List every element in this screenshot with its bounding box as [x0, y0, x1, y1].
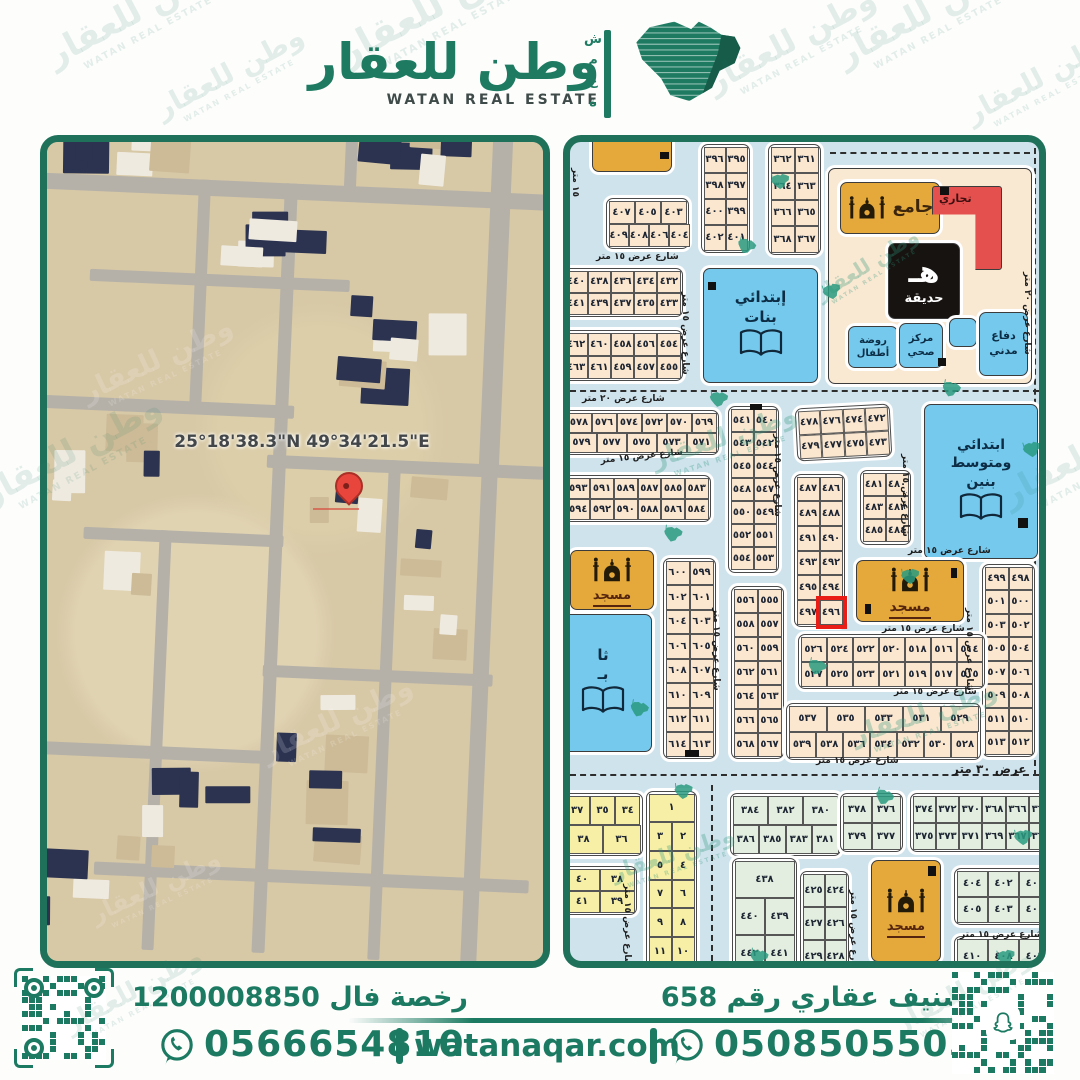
plot-cell: ٣٦٧ [795, 226, 819, 253]
plot-block: ٤٠٤٤٠٢٤٠٠٤٠٥٤٠٣٤٠١ [954, 868, 1046, 925]
plot-cell: ٦٠٩ [690, 683, 714, 708]
plot-row: ٥٧٩٥٧٧٥٧٥٥٧٣٥٧١ [567, 433, 717, 453]
plot-block: ١٣٢٥٤٧٦٩٨١١١٠ [646, 791, 697, 968]
building [116, 835, 141, 860]
plot-cell: ٣٩٥ [726, 147, 748, 173]
plot-row: ٥٤٥٥٤٤ [731, 455, 777, 478]
plot-block: ٥٧٨٥٧٦٥٧٤٥٧٢٥٧٠٥٦٩٥٧٩٥٧٧٥٧٥٥٧٣٥٧١ [564, 410, 719, 455]
plot-cell: ٥٧٦ [592, 413, 617, 433]
plot-cell: ٣٨١ [812, 825, 839, 854]
qr-module [1010, 1067, 1016, 1073]
road [40, 394, 294, 419]
facility-difa: دفاعمدني [979, 312, 1028, 376]
facility-label: ومتوسط [951, 455, 1012, 471]
plot-cell: ٤٧٩ [799, 434, 823, 459]
qr-module [71, 990, 77, 996]
plot-cell: ٥٣٩ [789, 732, 816, 758]
plot-cell: ٥٧٤ [617, 413, 642, 433]
brand-map-icon [661, 524, 685, 549]
plot-cell: ٤٩٧ [797, 600, 820, 625]
plot-cell: ٥٣٨ [816, 732, 843, 758]
plot-cell: ٥٨٧ [638, 478, 662, 499]
building [310, 497, 329, 523]
plot-cell: ٦٠٤ [666, 610, 690, 635]
building [324, 735, 368, 774]
plot-row: ٥٤ [649, 851, 695, 880]
plot-cell: ٥٠٧ [985, 661, 1009, 685]
plot-cell: ٥٠٩ [985, 684, 1009, 708]
plot-cell: ٥٤٣ [731, 432, 754, 455]
road [344, 135, 359, 192]
plot-cell: ٦١٠ [666, 683, 690, 708]
plot-block: ٣٨٤٣٨٢٣٨٠٣٨٦٣٨٥٣٨٣٣٨١ [730, 793, 841, 856]
plot-cell: ٥٢٢ [853, 637, 879, 662]
plot-cell: ٧ [649, 880, 672, 909]
qr-module [996, 972, 1002, 978]
qr-module [981, 1038, 987, 1044]
plot-cell: ٥٦٣ [758, 685, 782, 709]
plot-cell: ٤٧٨ [797, 410, 821, 435]
plot-cell: ٤٦٣ [565, 356, 588, 379]
road [263, 665, 493, 687]
plot-cell: ٦٠١ [690, 585, 714, 610]
qr-module [99, 1018, 105, 1024]
plot-cell: ٤١٠ [957, 939, 988, 969]
plot-cell: ٦٠٦ [666, 634, 690, 659]
qr-module [71, 1053, 77, 1059]
plot-row: ٦٠٤٦٠٣ [666, 610, 714, 635]
plot-row: ٥١١٥١٠ [985, 708, 1033, 732]
snapchat-ghost-icon [986, 1006, 1020, 1040]
plot-cell: ٦٠٠ [666, 561, 690, 586]
plot-row: ٤٠٧٤٠٥٤٠٣ [609, 201, 687, 224]
qr-module [981, 979, 987, 985]
qr-module [1047, 1030, 1053, 1036]
qr-module [1025, 1045, 1031, 1051]
plot-cell: ٣٨٣ [786, 825, 813, 854]
plot-cell: ٦٠٧ [690, 659, 714, 684]
qr-module [92, 1032, 98, 1038]
plot-cell: ٤٠٤ [669, 224, 689, 247]
facility-school-banat: إبتدائيبنات [703, 268, 818, 383]
facility-jami: جامع [840, 182, 940, 234]
plot-row: ٥٦٤٥٦٣ [734, 685, 782, 709]
qr-code-snapchat [952, 972, 1054, 1074]
building [389, 338, 419, 363]
plot-cell: ٣ [649, 822, 672, 851]
street-label: شارع عرض ١٥ متر [848, 890, 858, 968]
building [116, 152, 153, 177]
plot-cell: ٤٩٦ [820, 600, 843, 625]
plot-row: ٤٧٩٤٧٧٤٧٥٤٧٣ [799, 430, 890, 459]
plot-cell: ٥٩٩ [690, 561, 714, 586]
plot-block: ٤٢٥٤٢٤٤٢٧٤٢٦٤٢٩٤٢٨ [800, 871, 849, 968]
plot-cell: ٥٠٥ [985, 637, 1009, 661]
plot-row: ٥٠١٥٠٠ [985, 590, 1033, 614]
plot-row: ٦١٢٦١١ [666, 708, 714, 733]
qr-module [959, 1008, 965, 1014]
plot-row: ٥٥٢٥٥١ [731, 524, 777, 547]
building [358, 137, 402, 166]
plot-cell: ٣٨٤ [733, 796, 768, 825]
brand-map-icon [1011, 826, 1037, 852]
building [356, 497, 383, 533]
qr-module [1047, 1059, 1053, 1065]
plot-cell: ٤٠١ [1019, 897, 1046, 923]
plot-cell: ٥٦٨ [734, 733, 758, 757]
plot-cell: ٥٧٨ [567, 413, 592, 433]
plot-cell: ٤٩٩ [985, 567, 1009, 591]
brand-logo: وطن للعقار WATAN REAL ESTATE [240, 36, 600, 108]
brand-map-icon [747, 947, 771, 968]
plot-cell: ٦١٢ [666, 708, 690, 733]
classification-text: تصنيف عقاري رقم 658 [640, 982, 1000, 1013]
plot-row: ٤٩٧٤٩٦ [797, 600, 843, 625]
qr-module [1003, 1052, 1009, 1058]
plot-cell: ٦٠٨ [666, 659, 690, 684]
plot-cell: ٤٢٨ [825, 940, 847, 968]
plot-cell: ٤٢٥ [803, 874, 825, 907]
building [276, 732, 297, 762]
street-label: شارع عرض ١٥ متر [816, 756, 899, 766]
brand-map-icon [1019, 438, 1046, 466]
plot-cell: ٤١ [565, 891, 600, 913]
brand-map-icon [768, 170, 794, 196]
qr-module [1039, 1038, 1045, 1044]
plot-cell: ٤٣٦ [611, 271, 634, 293]
plot-row: ٤٩٥٤٩٤ [797, 575, 843, 600]
gps-coordinates-label: 25°18'38.3"N 49°34'21.5"E [117, 432, 487, 452]
facility-hadiqah: هـحديقة [888, 243, 960, 319]
plot-row: ٣٢ [649, 822, 695, 851]
plot-cell: ٥٧٩ [567, 433, 597, 453]
qr-module [36, 1025, 42, 1031]
garden-letter: هـ [908, 255, 939, 290]
dashed-street [830, 152, 1030, 154]
plot-cell: ٣٧١ [959, 823, 982, 850]
plot-cell: ٤٨٥ [863, 519, 886, 542]
qr-module [974, 1067, 980, 1073]
qr-module [1039, 1059, 1045, 1065]
facility-label: بنين [966, 474, 995, 490]
plot-cell: ٥٣٠ [924, 732, 951, 758]
brand-map-icon [938, 378, 964, 404]
street-label: شارع عرض ٢٠ متر [582, 394, 665, 404]
qr-module [952, 994, 958, 1000]
qr-module [43, 990, 49, 996]
qr-module [1039, 1030, 1045, 1036]
plot-cell: ٥٨٥ [661, 478, 685, 499]
plot-cell: ٣٥ [590, 796, 615, 825]
license-text: رخصة فال 1200008850 [120, 982, 480, 1013]
plot-row: ٥٦٠٥٥٩ [734, 637, 782, 661]
building [75, 136, 93, 161]
plot-cell: ٥٨٣ [685, 478, 709, 499]
plot-cell: ٣٦٩ [982, 823, 1005, 850]
building [351, 295, 374, 318]
plot-cell: ٥١٠ [1009, 708, 1033, 732]
plot-cell: ٤٣٤ [634, 271, 657, 293]
plot-cell: ٥٢٥ [827, 662, 853, 687]
plot-row: ٣٨٤٣٨٢٣٨٠ [733, 796, 839, 825]
brand-map-icon [898, 565, 924, 591]
plot-cell: ٣٧ [565, 796, 590, 825]
entrance-mark [951, 568, 957, 578]
plot-cell: ٣٨٢ [768, 796, 803, 825]
entrance-mark [928, 866, 936, 876]
qr-module [1003, 972, 1009, 978]
plot-row: ٤٨٩٤٨٨ [797, 501, 843, 526]
brand-map-icon [672, 781, 696, 806]
facility-school-partial: ثابـ [563, 614, 652, 752]
qr-module [981, 1045, 987, 1051]
qr-module [952, 1023, 958, 1029]
plot-cell: ٥٦٢ [734, 661, 758, 685]
plot-cell: ٥ [649, 851, 672, 880]
plot-cell: ٥٥٢ [731, 524, 754, 547]
plot-cell: ٥٩٢ [590, 499, 614, 520]
plot-cell: ٤٣٥ [634, 293, 657, 315]
side-letter: ع [584, 74, 602, 89]
road [479, 135, 514, 472]
plot-cell: ٤٣٩ [588, 293, 611, 315]
qr-module [967, 1023, 973, 1029]
qr-module [64, 1011, 70, 1017]
plot-cell: ٤٩٢ [820, 551, 843, 576]
plot-cell: ٣٦٨ [982, 796, 1005, 823]
qr-module [1025, 1030, 1031, 1036]
plot-cell: ٤٠٠ [1019, 871, 1046, 897]
building [52, 479, 72, 501]
plot-row: ٥١٣٥١٢ [985, 731, 1033, 755]
plot-cell: ٤٥٨ [611, 333, 634, 356]
qr-module [967, 1052, 973, 1058]
plot-cell: ٤٤١ [565, 293, 588, 315]
plot-row: ٣٧٣٥٣٤ [565, 796, 641, 825]
plot-cell: ٢ [672, 822, 695, 851]
plot-row: ٥٩٤٥٩٢٥٩٠٥٨٨٥٨٦٥٨٤ [567, 499, 709, 520]
plot-row: ٤٣٨ [735, 861, 795, 898]
qr-module [1025, 979, 1031, 985]
plot-block: ٣٦٢٣٦١٣٦٤٣٦٣٣٦٦٣٦٥٣٦٨٣٦٧ [768, 144, 821, 255]
street-label: شارع عرض ١٥ متر [596, 252, 679, 262]
plot-cell: ٤٨٣ [863, 496, 886, 519]
qr-module [1032, 972, 1038, 978]
qr-module [64, 976, 70, 982]
qr-module [1047, 1001, 1053, 1007]
plot-row: ٦١٠٦٠٩ [666, 683, 714, 708]
plot-cell: ٥٦١ [758, 661, 782, 685]
plot-cell: ٤٠٦ [1019, 939, 1046, 969]
plot-row: ٥٠٧٥٠٦ [985, 661, 1033, 685]
satellite-tilt-layer [40, 135, 550, 968]
phone-number-right: 0508505505 [714, 1024, 975, 1065]
plot-cell: ٣٤ [615, 796, 640, 825]
qr-module [85, 1053, 91, 1059]
plot-cell: ٣٦٤ [1029, 796, 1046, 823]
qr-module [43, 1018, 49, 1024]
plot-cell: ٤٣٢ [657, 271, 680, 293]
plot-row: ٥٥٨٥٥٧ [734, 613, 782, 637]
brand-map-icon [626, 698, 652, 724]
plot-row: ٤٩٩٤٩٨ [985, 567, 1033, 591]
plot-row: ٥٢٦٥٢٤٥٢٢٥٢٠٥١٨٥١٦٥١٤ [801, 637, 983, 662]
road [251, 183, 298, 953]
road [189, 179, 211, 409]
plot-row: ٤٤٠٤٣٨٤٣٦٤٣٤٤٣٢ [565, 271, 681, 293]
qr-module [1003, 987, 1009, 993]
plot-cell: ٤٠٤ [957, 871, 988, 897]
plot-row: ٤٦٣٤٦١٤٥٩٤٥٧٤٥٥ [565, 356, 681, 379]
plot-block: ٤٨٧٤٨٦٤٨٩٤٨٨٤٩١٤٩٠٤٩٣٤٩٢٤٩٥٤٩٤٤٩٧٤٩٦ [794, 474, 845, 627]
street-label: شارع عرض ١٥ متر [908, 546, 991, 556]
entrance-mark [940, 187, 949, 195]
plot-cell: ٥٦٠ [734, 637, 758, 661]
facility-mosque-left: مسجد [570, 550, 654, 610]
plot-cell: ٥٧٠ [667, 413, 692, 433]
plot-cell: ٣٦٦ [1006, 796, 1029, 823]
plot-block: ٤٧٨٤٧٦٤٧٤٤٧٢٤٧٩٤٧٧٤٧٥٤٧٣ [795, 404, 893, 462]
entrance-mark [660, 152, 669, 159]
plot-cell: ٣٦٢ [771, 147, 795, 174]
plot-cell: ٤٢٩ [803, 940, 825, 968]
plot-block: ٥٩٣٥٩١٥٨٩٥٨٧٥٨٥٥٨٣٥٩٤٥٩٢٥٩٠٥٨٨٥٨٦٥٨٤ [564, 475, 711, 522]
plot-cell: ٣٨ [565, 825, 603, 854]
qr-module [50, 1039, 56, 1045]
plot-row: ٤٠٠٣٩٩ [704, 199, 748, 225]
plot-cell: ٣٧٢ [936, 796, 959, 823]
plot-row: ٥٣٧٥٣٥٥٣٣٥٣١٥٢٩ [789, 706, 979, 732]
qr-module [1003, 1067, 1009, 1073]
building [179, 771, 199, 807]
plot-cell: ٣٧٨ [843, 796, 872, 823]
plot-cell: ٣٧٥ [913, 823, 936, 850]
mosque-icon [590, 553, 634, 587]
plot-cell: ٥٨٩ [614, 478, 638, 499]
qr-module [974, 1016, 980, 1022]
plot-cell: ٣٧٩ [843, 823, 872, 850]
plot-cell: ٤٩٨ [1009, 567, 1033, 591]
plot-cell: ٤٣٧ [611, 293, 634, 315]
facility-rawda: روضةأطفال [848, 326, 898, 368]
plot-cell: ٤٠ [565, 869, 600, 891]
plot-row: ٣٨٣٦ [565, 825, 641, 854]
facility-label: مسجد [593, 589, 631, 607]
building [143, 451, 160, 477]
qr-module [29, 1011, 35, 1017]
qr-module [967, 1008, 973, 1014]
plot-cell: ٥٠٠ [1009, 590, 1033, 614]
plot-cell: ٤٣٣ [657, 293, 680, 315]
plot-cell: ٥٥٠ [731, 501, 754, 524]
qr-module [1039, 1067, 1045, 1073]
street-label: شارع عرض ١٥ متر [964, 608, 974, 691]
plot-cell: ٥٣٤ [870, 732, 897, 758]
plot-row: ٣٦٢٣٦١ [771, 147, 819, 174]
qr-module [64, 1018, 70, 1024]
plot-row: ٥٠٣٥٠٢ [985, 614, 1033, 638]
plot-cell: ٤٧٥ [844, 431, 868, 456]
facility-label: جامع [893, 198, 934, 218]
plot-row: ٤٠٩٤٠٨٤٠٦٤٠٤ [609, 224, 687, 247]
qr-module [85, 1011, 91, 1017]
plot-cell: ٤٠٣ [661, 201, 687, 224]
street-label: شارع عرض ٢٠ متر [1022, 272, 1032, 355]
plot-cell: ٤٠٧ [609, 201, 635, 224]
plot-cell: ٤٠٥ [957, 897, 988, 923]
qr-module [57, 976, 63, 982]
plot-block: ٤٩٩٤٩٨٥٠١٥٠٠٥٠٣٥٠٢٥٠٥٥٠٤٥٠٧٥٠٦٥٠٩٥٠٨٥١١٥… [982, 564, 1035, 757]
plot-cell: ٥٢٤ [827, 637, 853, 662]
plot-cell: ٣٧٧ [872, 823, 901, 850]
qr-module [1039, 979, 1045, 985]
mosque-icon [884, 884, 928, 918]
plot-cell: ٤٣٩ [765, 898, 795, 935]
qr-module [1025, 1038, 1031, 1044]
building [403, 595, 433, 611]
facility-label: بنات [744, 309, 776, 326]
plot-cell: ٥٠٤ [1009, 637, 1033, 661]
plot-cell: ٣٦ [603, 825, 641, 854]
plot-cell: ٤٤٠ [565, 271, 588, 293]
entrance-mark [865, 604, 871, 614]
brand-name-arabic: وطن للعقار [240, 36, 600, 89]
street-label: شارع عرض ١٥ متر [622, 884, 632, 967]
street-label: شارع عرض ١٥ متر [882, 624, 965, 634]
plot-row: ٣٦٦٣٦٥ [771, 200, 819, 227]
plot-row: ٤٠٤٤٠٢٤٠٠ [957, 871, 1047, 897]
qr-module [50, 1046, 56, 1052]
plot-row: ٥٣٩٥٣٨٥٣٦٥٣٤٥٣٢٥٣٠٥٢٨ [789, 732, 979, 758]
facility-blue-small [949, 318, 977, 347]
qr-module [50, 983, 56, 989]
footer-separator [650, 1028, 657, 1064]
plot-row: ٤٢٧٤٢٦ [803, 907, 847, 940]
plot-cell: ٤٥٤ [657, 333, 680, 356]
book-icon [738, 328, 784, 362]
qr-module [78, 1032, 84, 1038]
plot-cell: ٥٥٩ [758, 637, 782, 661]
building [320, 694, 355, 709]
plot-cell: ٤٣٨ [735, 861, 795, 898]
qr-module [952, 1052, 958, 1058]
road [83, 527, 283, 548]
plot-cell: ٤٠٨ [629, 224, 649, 247]
qr-module [71, 976, 77, 982]
plot-block: ٥٥٦٥٥٥٥٥٨٥٥٧٥٦٠٥٥٩٥٦٢٥٦١٥٦٤٥٦٣٥٦٦٥٦٥٥٦٨٥… [731, 586, 784, 759]
plot-cell: ٤٠٢ [988, 871, 1019, 897]
qr-module [99, 1039, 105, 1045]
facility-label: حديقة [905, 292, 944, 307]
plot-cell: ٥١٢ [1009, 731, 1033, 755]
plot-cell: ٤٩٥ [797, 575, 820, 600]
street-label: شارع عرض ١٥ متر [711, 608, 721, 691]
building [149, 135, 192, 174]
plot-cell: ٤٠٢ [704, 225, 726, 251]
plot-cell: ٤٨٨ [820, 501, 843, 526]
brand-divider-bar [604, 30, 611, 118]
brand-side-letters: ش م ع ة [584, 32, 602, 110]
brand-name-english: WATAN REAL ESTATE [240, 92, 600, 108]
plot-cell: ٤ [672, 851, 695, 880]
brand-map-icon [708, 390, 730, 413]
plot-cell: ٤٨٦ [820, 477, 843, 502]
plot-cell: ٥٦٤ [734, 685, 758, 709]
qr-module [974, 972, 980, 978]
plot-row: ٤٤٠٤٣٩ [735, 898, 795, 935]
qr-module [1032, 979, 1038, 985]
qr-module [981, 1001, 987, 1007]
